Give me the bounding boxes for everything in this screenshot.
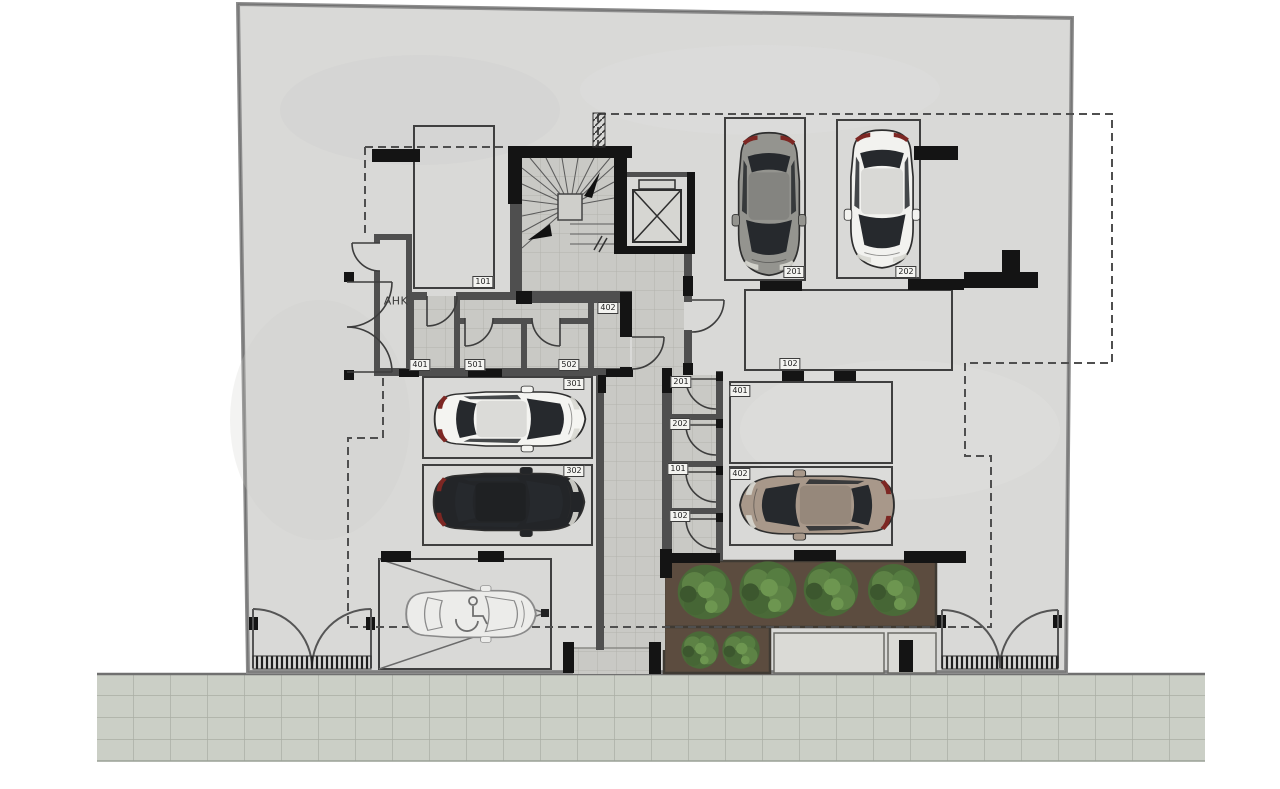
planter (664, 561, 936, 673)
car-302 (434, 467, 585, 536)
storage-502-label: 502 (558, 359, 579, 371)
shrub (722, 631, 759, 668)
floor-plan-drawing (0, 0, 1280, 789)
car-202 (844, 130, 920, 268)
parking-102-label: 102 (779, 358, 800, 370)
elevator (633, 180, 681, 242)
car-301 (435, 386, 586, 452)
parking-401-label: 401 (729, 385, 750, 397)
parking-201-label: 201 (783, 266, 804, 278)
shrub (804, 562, 859, 617)
parking-101-label: 101 (472, 276, 493, 288)
shrub (678, 565, 733, 620)
elevator-door (639, 180, 675, 189)
car-accessible-outline (406, 586, 536, 643)
parking-302-label: 302 (563, 465, 584, 477)
shrub (868, 564, 920, 616)
floor-plan-stage: 101 201 202 102 301 302 401 402 401 501 … (0, 0, 1280, 789)
storage-101-label: 101 (667, 463, 688, 475)
storage-402-label: 402 (597, 302, 618, 314)
ahk-room-label: AHK (384, 295, 409, 308)
storage-501-label: 501 (464, 359, 485, 371)
storage-202-label: 202 (669, 418, 690, 430)
storage-102-label: 102 (669, 510, 690, 522)
storage-401-label: 401 (409, 359, 430, 371)
parking-402-label: 402 (729, 468, 750, 480)
shrub (681, 631, 718, 668)
shrub (739, 561, 796, 618)
car-201 (732, 133, 806, 276)
parking-301-label: 301 (563, 378, 584, 390)
hatched-column (593, 113, 605, 147)
parking-202-label: 202 (895, 266, 916, 278)
car-402 (740, 470, 894, 540)
storage-201-label: 201 (670, 376, 691, 388)
sidewalk (97, 674, 1205, 761)
